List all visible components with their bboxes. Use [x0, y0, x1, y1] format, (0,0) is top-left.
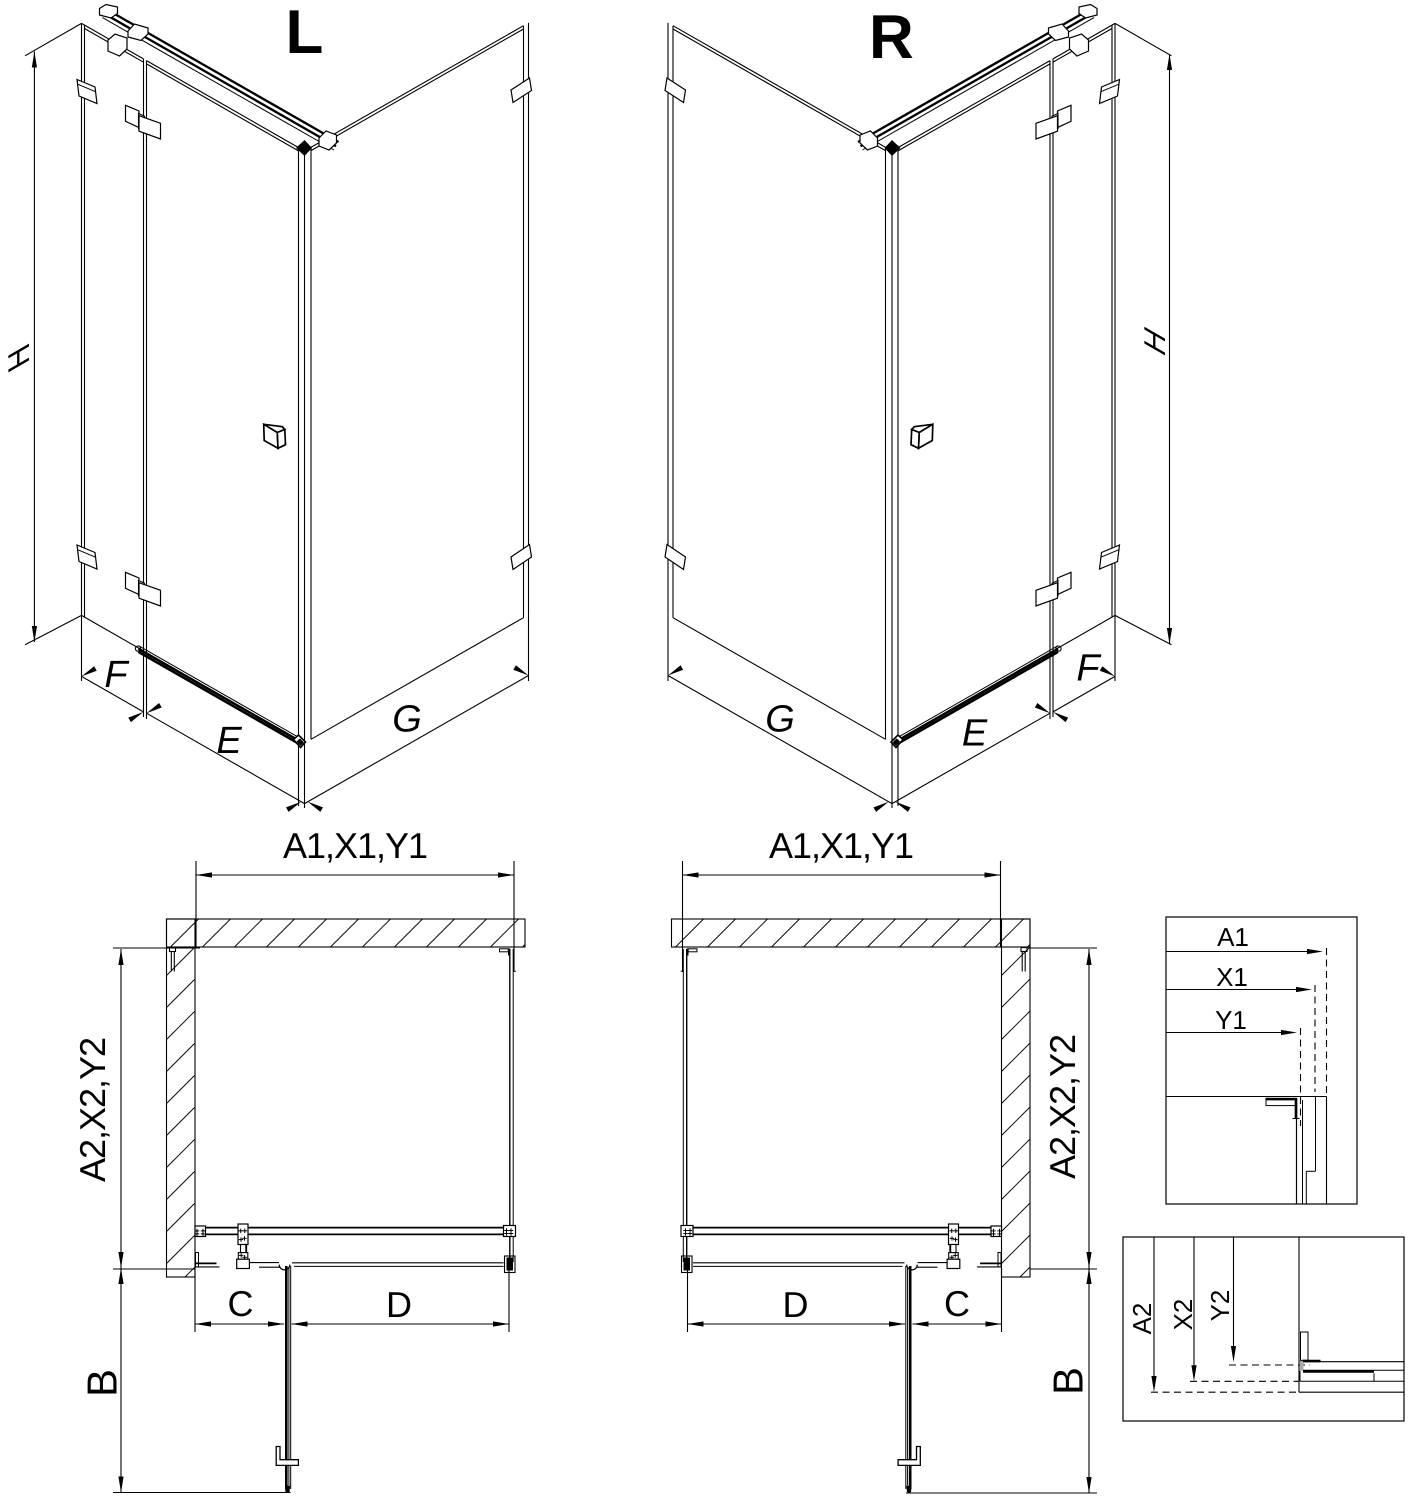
svg-text:Y1: Y1 [1215, 1005, 1247, 1035]
svg-text:F: F [104, 654, 129, 696]
svg-text:F: F [1076, 648, 1101, 690]
svg-text:A2,X2,Y2: A2,X2,Y2 [72, 1038, 113, 1182]
svg-text:A1,X1,Y1: A1,X1,Y1 [769, 825, 913, 866]
svg-text:R: R [869, 3, 914, 72]
svg-text:X1: X1 [1216, 962, 1248, 992]
svg-text:G: G [765, 699, 795, 741]
svg-text:A1,X1,Y1: A1,X1,Y1 [283, 825, 427, 866]
svg-text:D: D [783, 1284, 809, 1325]
svg-text:E: E [216, 720, 242, 762]
svg-text:C: C [944, 1283, 970, 1324]
svg-text:D: D [386, 1284, 412, 1325]
svg-text:A1: A1 [1217, 922, 1249, 952]
svg-text:A2,X2,Y2: A2,X2,Y2 [1042, 1035, 1083, 1179]
svg-text:E: E [962, 713, 988, 755]
svg-text:B: B [79, 1369, 126, 1397]
svg-text:B: B [1045, 1367, 1092, 1395]
svg-text:Y2: Y2 [1205, 1290, 1235, 1322]
svg-text:A2: A2 [1127, 1303, 1157, 1335]
svg-text:C: C [228, 1283, 254, 1324]
svg-text:X2: X2 [1168, 1299, 1198, 1331]
svg-text:L: L [286, 0, 324, 67]
svg-text:G: G [392, 699, 422, 741]
